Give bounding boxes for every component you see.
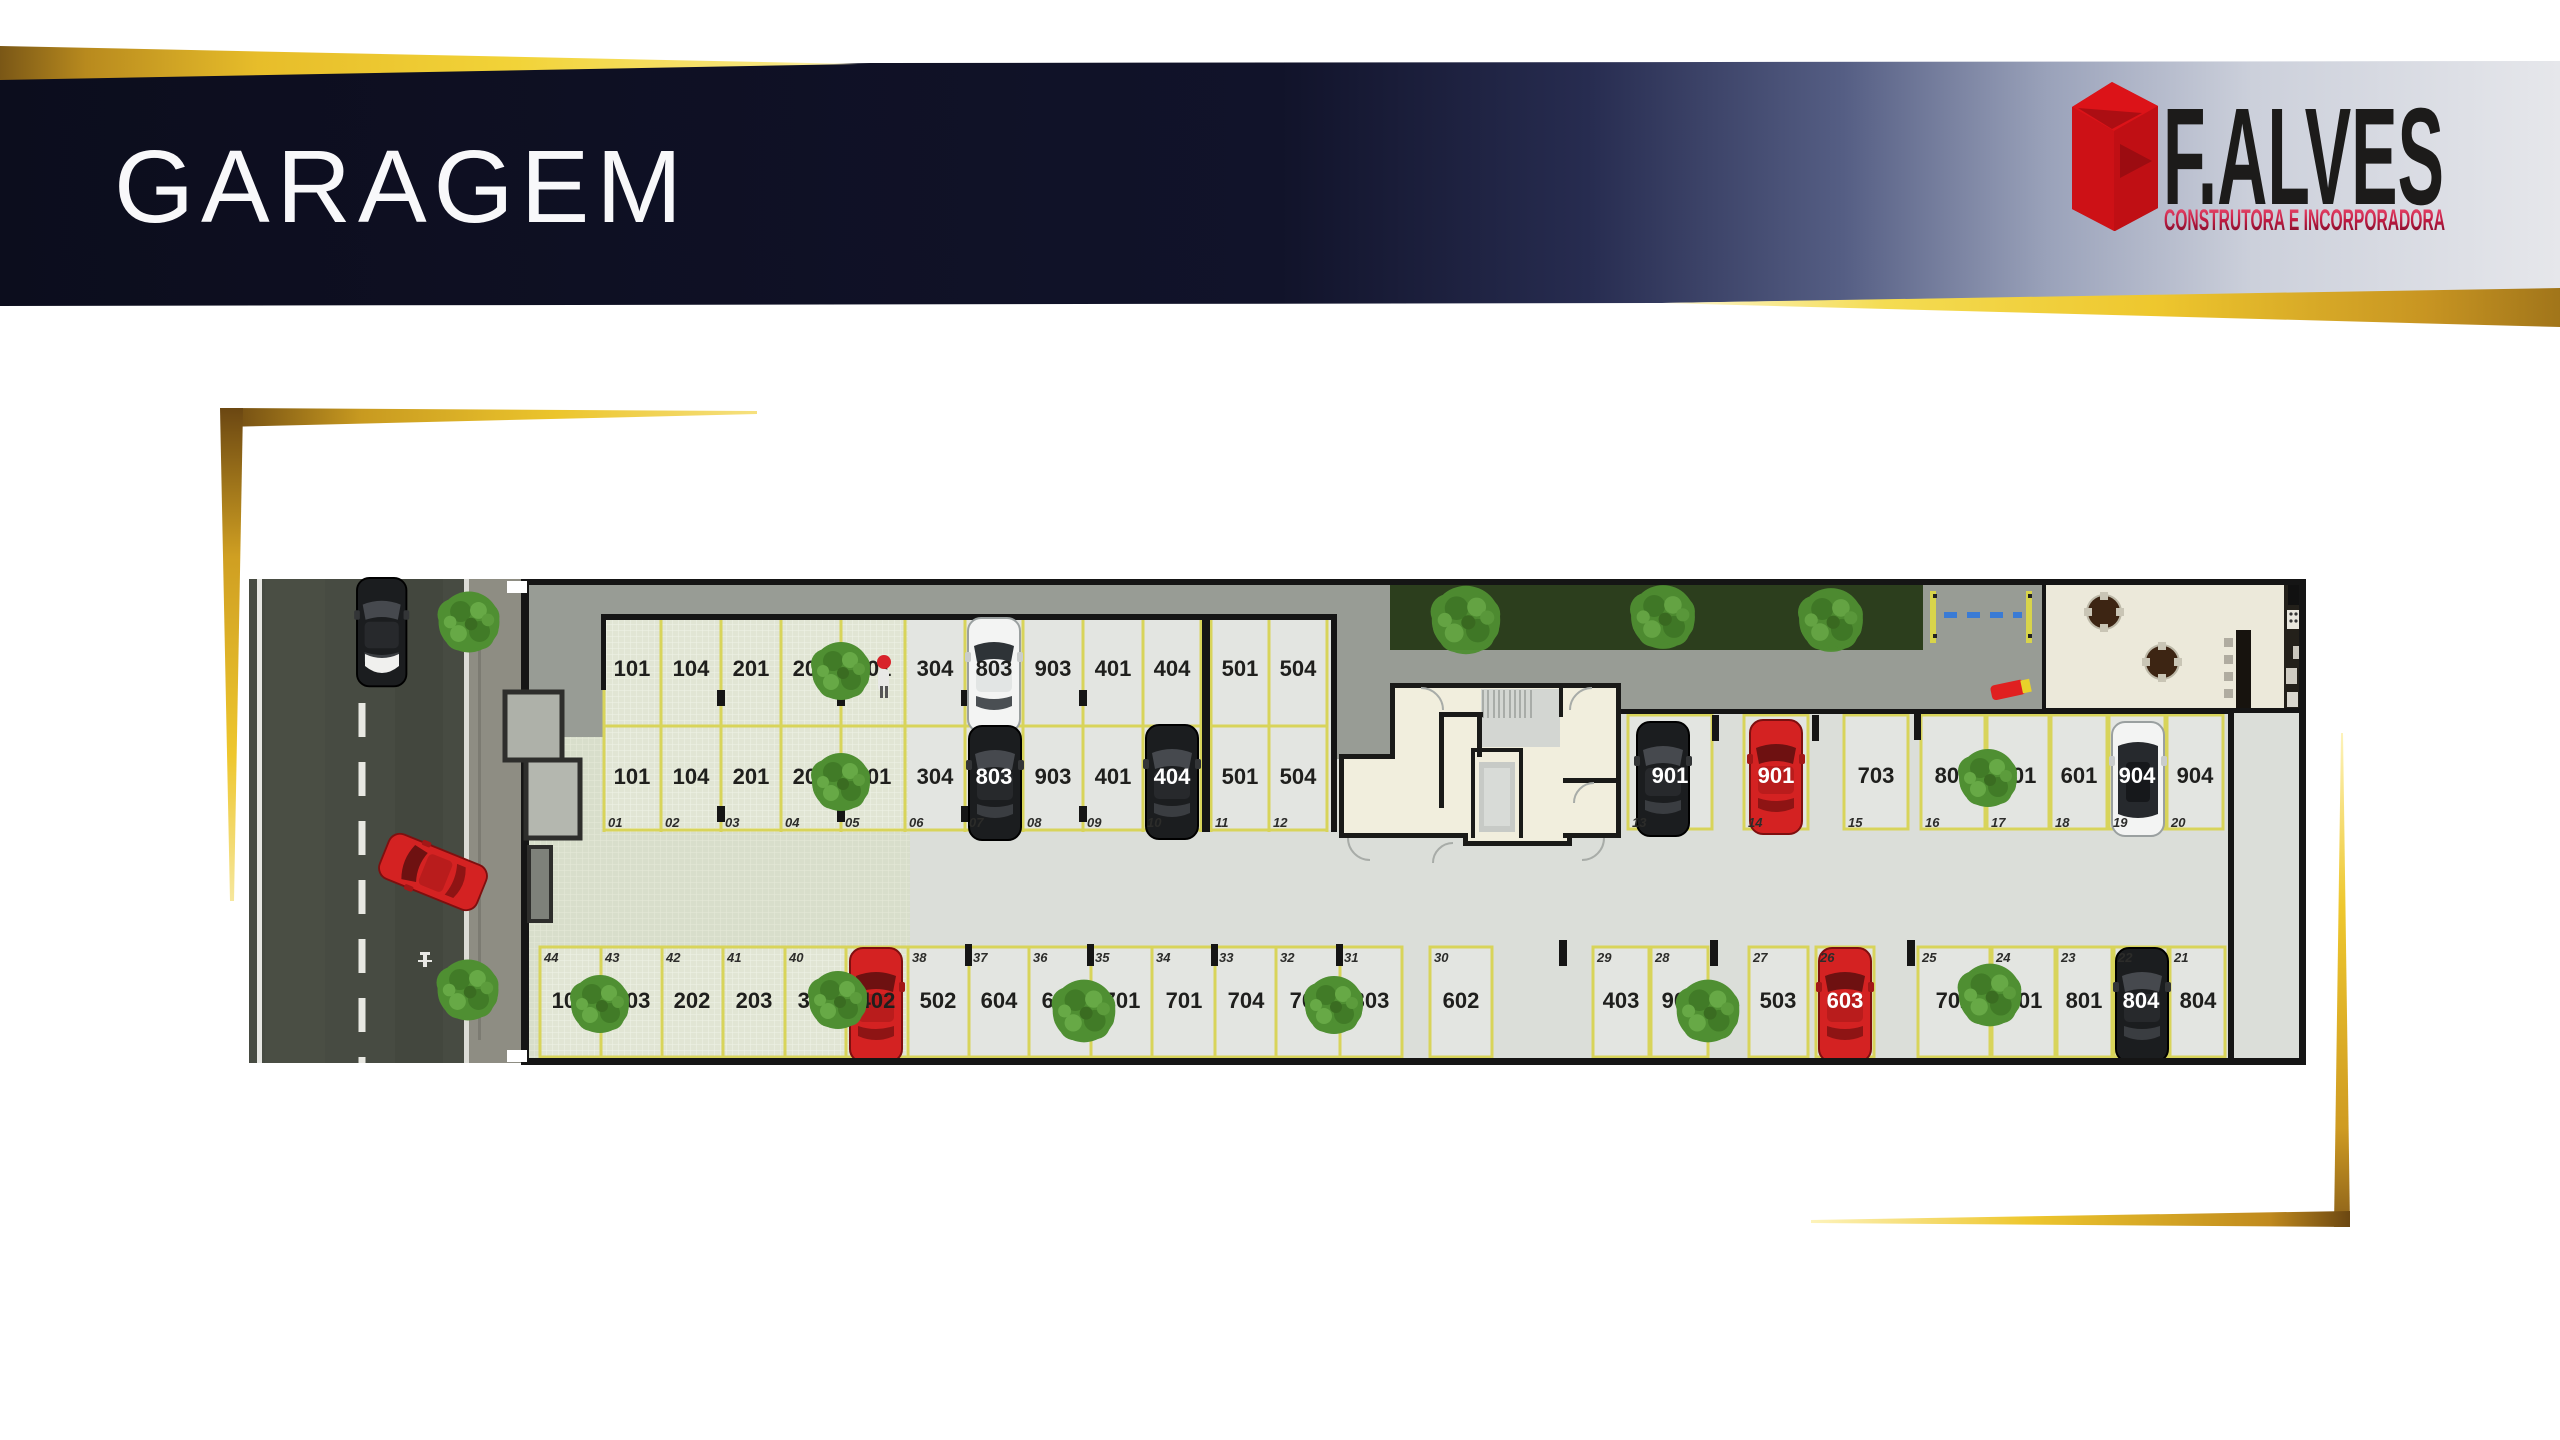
svg-text:404: 404 — [1154, 656, 1191, 681]
svg-text:401: 401 — [1095, 656, 1132, 681]
svg-text:304: 304 — [917, 764, 954, 789]
svg-text:19: 19 — [2113, 815, 2128, 830]
svg-text:504: 504 — [1280, 764, 1317, 789]
svg-text:903: 903 — [1035, 656, 1072, 681]
svg-text:502: 502 — [920, 988, 957, 1013]
svg-text:05: 05 — [845, 815, 860, 830]
svg-text:42: 42 — [665, 950, 681, 965]
svg-text:703: 703 — [1858, 763, 1895, 788]
svg-text:403: 403 — [1603, 988, 1640, 1013]
svg-text:903: 903 — [1035, 764, 1072, 789]
svg-text:804: 804 — [2123, 988, 2160, 1013]
svg-text:504: 504 — [1280, 656, 1317, 681]
svg-text:25: 25 — [1921, 950, 1937, 965]
svg-text:38: 38 — [912, 950, 927, 965]
svg-text:41: 41 — [726, 950, 741, 965]
svg-text:28: 28 — [1654, 950, 1670, 965]
svg-text:201: 201 — [733, 656, 770, 681]
svg-text:40: 40 — [788, 950, 804, 965]
svg-text:21: 21 — [2173, 950, 2188, 965]
svg-text:24: 24 — [1995, 950, 2011, 965]
svg-text:604: 604 — [981, 988, 1018, 1013]
svg-text:404: 404 — [1154, 764, 1191, 789]
svg-text:803: 803 — [976, 764, 1013, 789]
svg-text:501: 501 — [1222, 656, 1259, 681]
svg-text:601: 601 — [2061, 763, 2098, 788]
svg-text:26: 26 — [1819, 950, 1835, 965]
svg-text:06: 06 — [909, 815, 924, 830]
svg-text:503: 503 — [1760, 988, 1797, 1013]
svg-text:32: 32 — [1280, 950, 1295, 965]
svg-text:202: 202 — [674, 988, 711, 1013]
svg-text:304: 304 — [917, 656, 954, 681]
svg-text:10: 10 — [1147, 815, 1162, 830]
svg-text:22: 22 — [2117, 950, 2133, 965]
svg-text:701: 701 — [1166, 988, 1203, 1013]
svg-text:901: 901 — [1652, 763, 1689, 788]
svg-text:08: 08 — [1027, 815, 1042, 830]
svg-text:11: 11 — [1215, 815, 1229, 830]
svg-text:04: 04 — [785, 815, 800, 830]
svg-text:18: 18 — [2055, 815, 2070, 830]
svg-text:30: 30 — [1434, 950, 1449, 965]
svg-text:02: 02 — [665, 815, 680, 830]
svg-text:801: 801 — [2066, 988, 2103, 1013]
svg-text:603: 603 — [1827, 988, 1864, 1013]
svg-text:16: 16 — [1925, 815, 1940, 830]
svg-text:12: 12 — [1273, 815, 1288, 830]
svg-text:34: 34 — [1156, 950, 1171, 965]
svg-text:104: 104 — [673, 764, 710, 789]
svg-text:43: 43 — [604, 950, 620, 965]
svg-text:104: 104 — [673, 656, 710, 681]
svg-text:03: 03 — [725, 815, 740, 830]
svg-text:14: 14 — [1748, 815, 1763, 830]
svg-text:20: 20 — [2170, 815, 2186, 830]
svg-text:27: 27 — [1752, 950, 1768, 965]
svg-text:15: 15 — [1848, 815, 1863, 830]
svg-text:101: 101 — [614, 656, 651, 681]
svg-text:36: 36 — [1033, 950, 1048, 965]
svg-text:704: 704 — [1228, 988, 1265, 1013]
svg-text:01: 01 — [608, 815, 622, 830]
svg-text:901: 901 — [1758, 763, 1795, 788]
svg-text:09: 09 — [1087, 815, 1102, 830]
svg-text:07: 07 — [969, 815, 984, 830]
svg-text:201: 201 — [733, 764, 770, 789]
svg-text:17: 17 — [1991, 815, 2006, 830]
svg-text:35: 35 — [1095, 950, 1110, 965]
svg-text:904: 904 — [2119, 763, 2156, 788]
svg-text:13: 13 — [1632, 815, 1647, 830]
svg-text:803: 803 — [976, 656, 1013, 681]
svg-text:23: 23 — [2060, 950, 2076, 965]
svg-text:602: 602 — [1443, 988, 1480, 1013]
svg-text:904: 904 — [2177, 763, 2214, 788]
svg-text:29: 29 — [1596, 950, 1612, 965]
svg-text:37: 37 — [973, 950, 988, 965]
svg-text:501: 501 — [1222, 764, 1259, 789]
svg-text:203: 203 — [736, 988, 773, 1013]
svg-text:401: 401 — [1095, 764, 1132, 789]
svg-text:CONSTRUTORA E INCORPORADORA: CONSTRUTORA E INCORPORADORA — [2164, 204, 2445, 237]
svg-text:101: 101 — [614, 764, 651, 789]
svg-text:804: 804 — [2180, 988, 2217, 1013]
svg-text:31: 31 — [1344, 950, 1358, 965]
svg-text:44: 44 — [543, 950, 559, 965]
svg-text:33: 33 — [1219, 950, 1234, 965]
